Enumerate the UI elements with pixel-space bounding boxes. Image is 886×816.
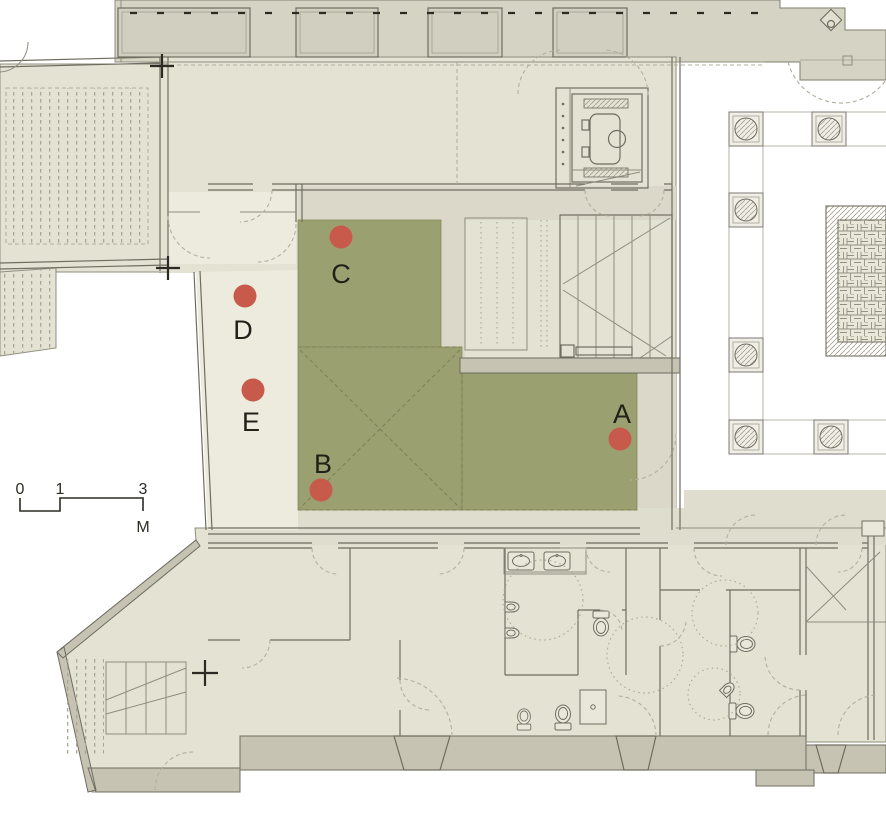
paving-panel: [826, 206, 886, 356]
toilet: [730, 636, 755, 652]
toilet: [555, 705, 571, 730]
scale-tick-3: 3: [139, 481, 148, 498]
scale-unit: M: [136, 519, 149, 536]
cabinet: [862, 521, 884, 536]
marker-b-dot[interactable]: [310, 479, 333, 502]
floor-plan-page: A B C D E 0 1 3 M: [0, 0, 886, 816]
floor-plan-canvas: A B C D E 0 1 3 M: [0, 0, 886, 816]
ramp-strip-hatch: [0, 268, 56, 356]
marker-e-label: E: [242, 407, 260, 437]
sink: [544, 552, 570, 570]
marker-d-dot[interactable]: [234, 285, 257, 308]
top-left-room-hatch: [6, 88, 148, 244]
circulation-east: [637, 373, 676, 510]
urinal: [505, 602, 519, 612]
marker-e-dot[interactable]: [242, 379, 265, 402]
column: [814, 420, 848, 454]
marker-d-label: D: [233, 315, 253, 345]
toilet: [593, 611, 609, 636]
scale-tick-1: 1: [56, 481, 65, 498]
column: [812, 112, 846, 146]
zone-upper: [298, 220, 441, 347]
marker-c-label: C: [331, 259, 351, 289]
toilet: [729, 703, 754, 719]
toilet: [517, 709, 531, 730]
column: [729, 112, 763, 146]
vestibule-floor: [168, 192, 296, 264]
winder-hatch: [62, 658, 104, 756]
sink: [508, 552, 534, 570]
urinal: [505, 628, 519, 638]
marker-a-dot[interactable]: [609, 428, 632, 451]
walkway-cloister: [684, 490, 886, 545]
marker-a-label: A: [613, 399, 631, 429]
corridor-floor: [196, 270, 298, 530]
marker-b-label: B: [314, 449, 332, 479]
stair-base-wall: [460, 358, 680, 373]
marker-c-dot[interactable]: [330, 226, 353, 249]
column: [729, 420, 763, 454]
column: [729, 338, 763, 372]
scale-tick-0: 0: [16, 481, 25, 498]
column: [729, 193, 763, 227]
